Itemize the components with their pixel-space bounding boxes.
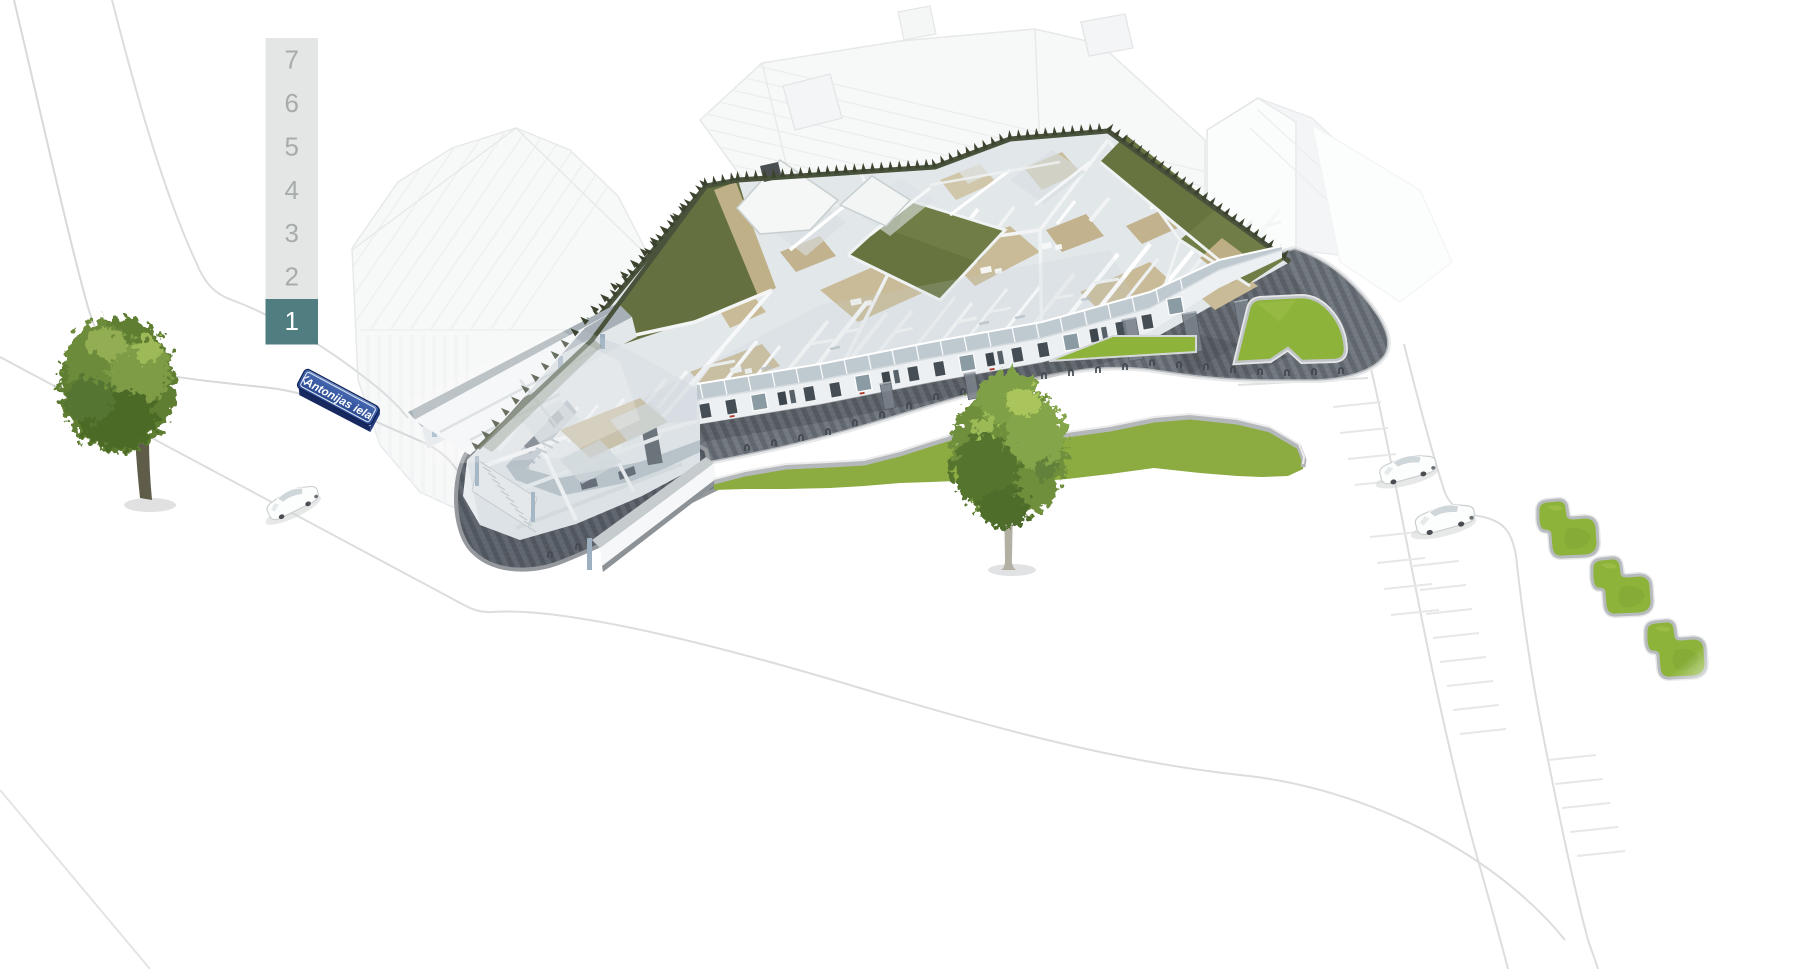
svg-text:5: 5: [284, 131, 298, 161]
svg-text:2: 2: [284, 262, 298, 292]
svg-text:1: 1: [284, 306, 298, 336]
svg-text:3: 3: [284, 218, 298, 248]
svg-text:6: 6: [284, 88, 298, 118]
svg-text:4: 4: [284, 175, 298, 205]
svg-text:7: 7: [284, 45, 298, 75]
